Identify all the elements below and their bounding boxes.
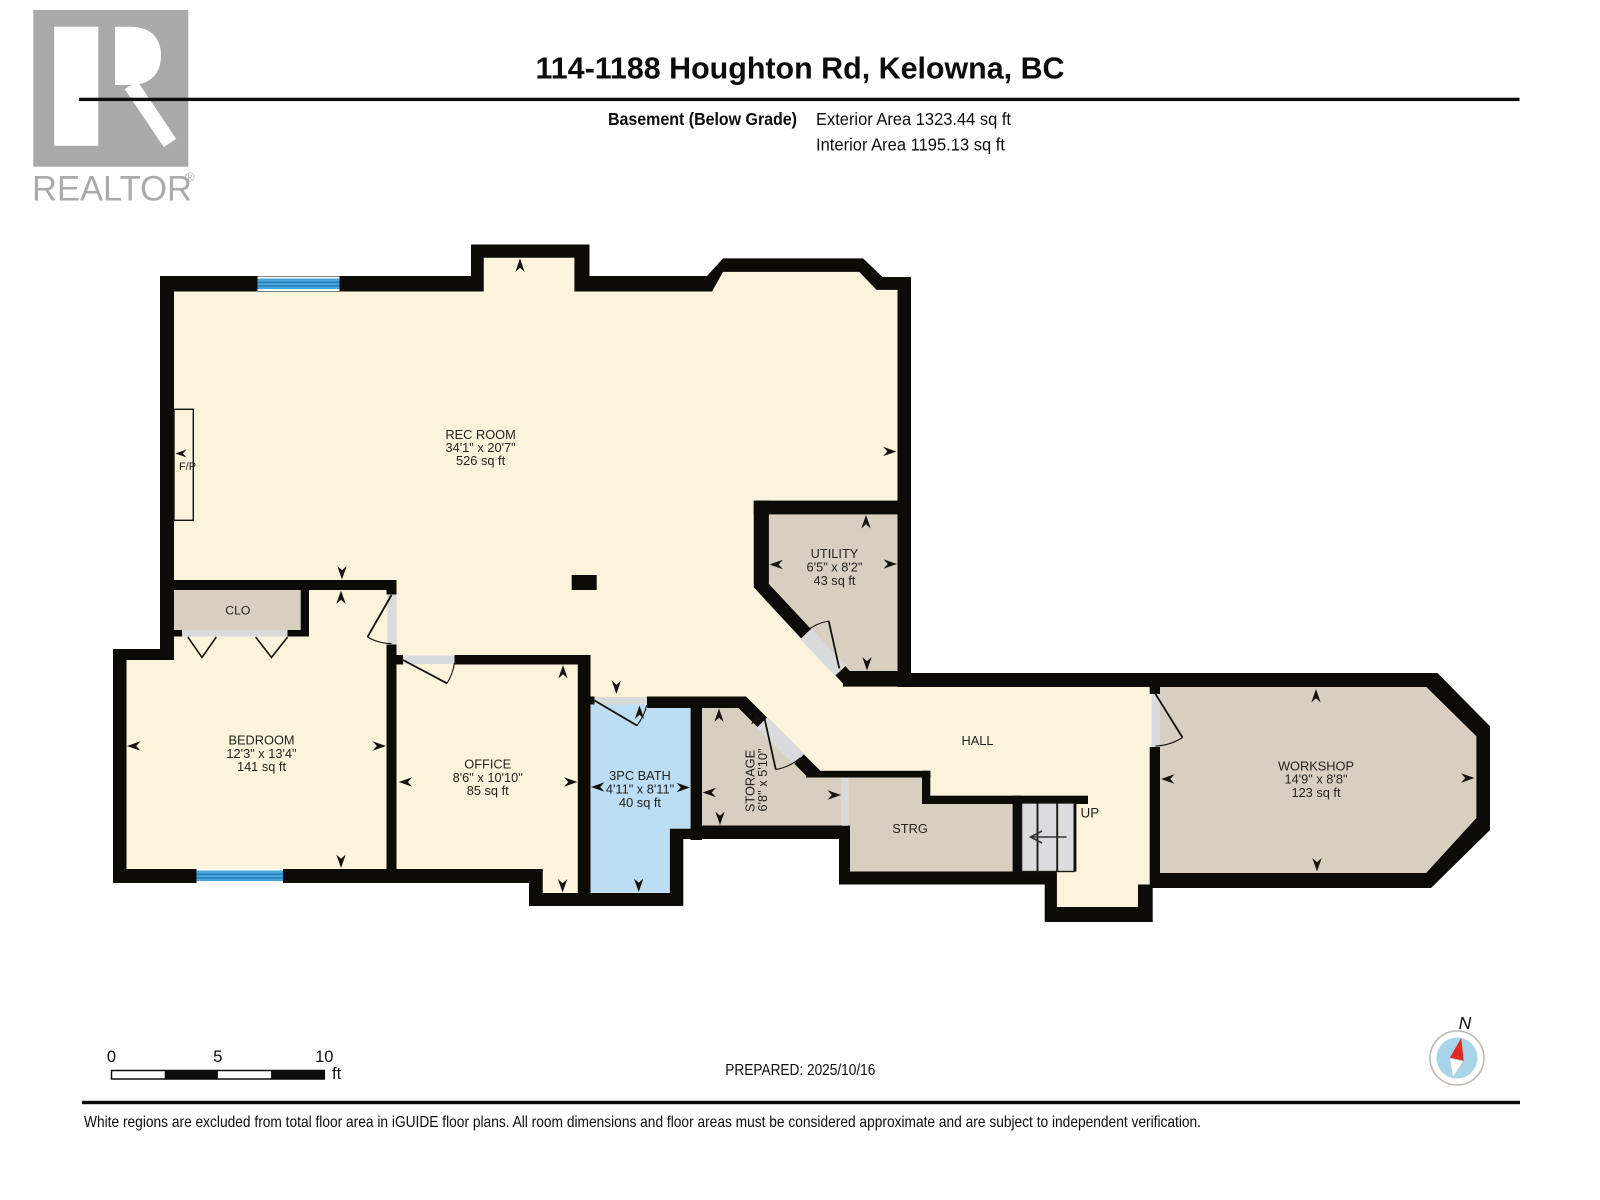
svg-text:0: 0 [107, 1048, 116, 1066]
svg-text:HALL: HALL [961, 733, 993, 748]
svg-text:CLO: CLO [225, 604, 250, 618]
svg-text:UP: UP [1081, 806, 1100, 821]
svg-text:PREPARED: 2025/10/16: PREPARED: 2025/10/16 [725, 1062, 875, 1079]
svg-text:123 sq ft: 123 sq ft [1291, 785, 1341, 800]
svg-text:Exterior Area 1323.44 sq ft: Exterior Area 1323.44 sq ft [816, 109, 1011, 129]
svg-text:F/P: F/P [179, 461, 196, 473]
svg-text:Interior Area 1195.13 sq ft: Interior Area 1195.13 sq ft [816, 135, 1005, 155]
svg-text:Basement (Below Grade): Basement (Below Grade) [608, 109, 797, 129]
svg-text:®: ® [185, 170, 195, 185]
svg-text:43 sq ft: 43 sq ft [814, 573, 856, 588]
svg-text:ft: ft [332, 1065, 342, 1083]
svg-text:5: 5 [213, 1048, 222, 1066]
svg-text:85 sq ft: 85 sq ft [467, 783, 509, 798]
svg-text:6'8" x 5'10": 6'8" x 5'10" [755, 748, 770, 811]
svg-text:40 sq ft: 40 sq ft [619, 795, 661, 810]
svg-text:N: N [1459, 1013, 1472, 1033]
svg-text:10: 10 [315, 1048, 333, 1066]
svg-text:141 sq ft: 141 sq ft [237, 759, 287, 774]
svg-text:White regions are excluded fro: White regions are excluded from total fl… [84, 1114, 1201, 1131]
svg-text:STRG: STRG [892, 821, 928, 836]
svg-text:REALTOR: REALTOR [32, 170, 192, 209]
svg-text:114-1188 Houghton Rd, Kelowna,: 114-1188 Houghton Rd, Kelowna, BC [536, 51, 1065, 86]
svg-text:526 sq ft: 526 sq ft [456, 453, 506, 468]
